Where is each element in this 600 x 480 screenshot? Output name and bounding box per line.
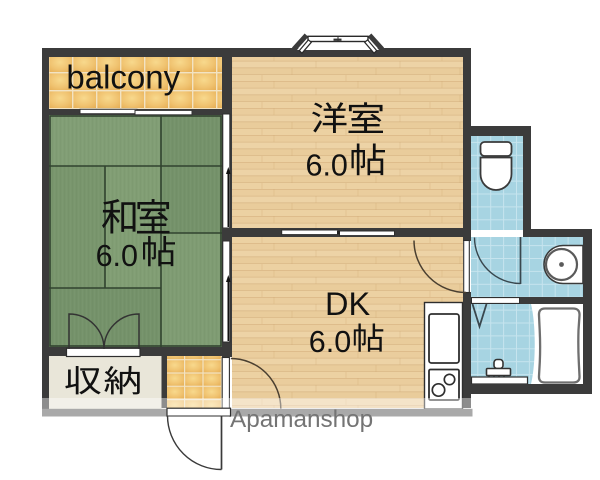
svg-text:6.0: 6.0 bbox=[306, 148, 348, 182]
svg-text:DK: DK bbox=[325, 286, 370, 322]
svg-text:Apamanshop: Apamanshop bbox=[230, 406, 373, 433]
svg-text:6.0: 6.0 bbox=[309, 325, 351, 359]
svg-text:balcony: balcony bbox=[66, 59, 180, 96]
svg-text:6.0: 6.0 bbox=[96, 239, 138, 273]
